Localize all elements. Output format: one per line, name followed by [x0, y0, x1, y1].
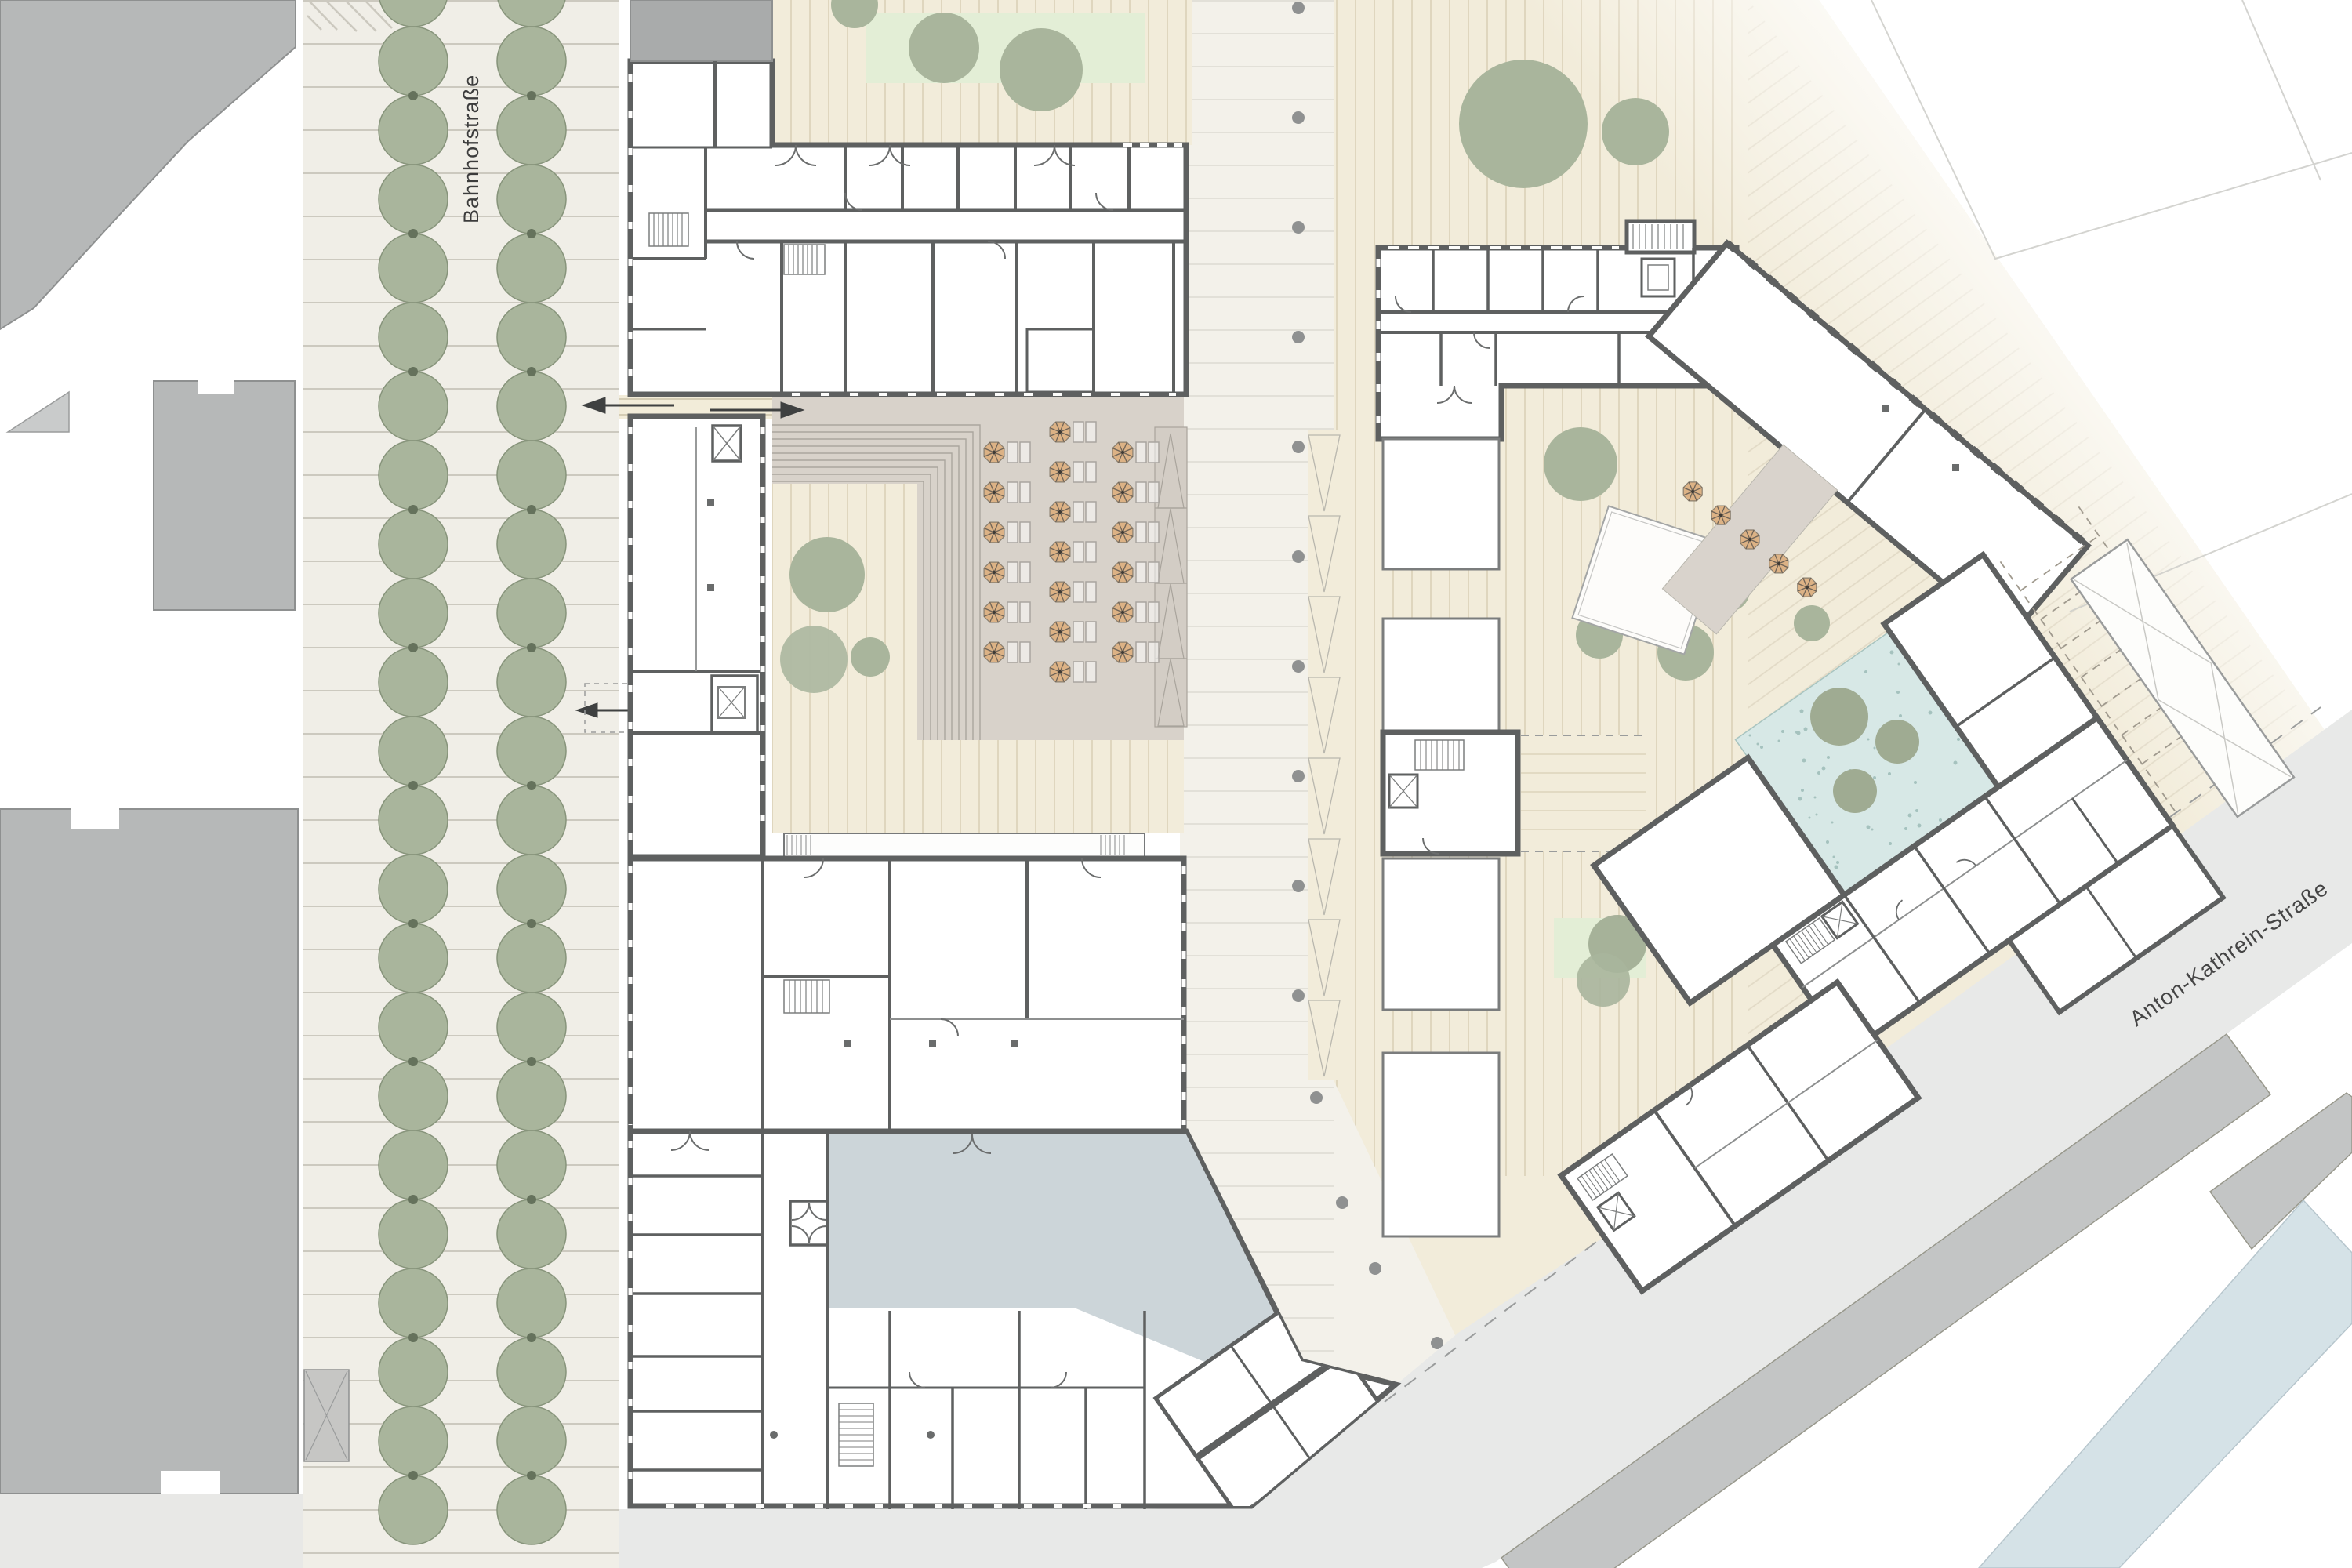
svg-text:Bahnhofstraße: Bahnhofstraße	[459, 74, 483, 223]
